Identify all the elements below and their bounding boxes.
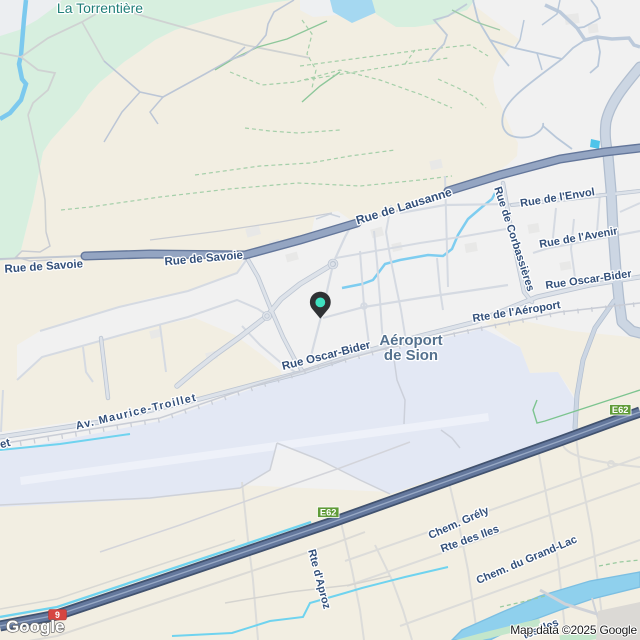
- svg-text:de Sion: de Sion: [384, 347, 438, 364]
- svg-text:Map data ©2025 Google: Map data ©2025 Google: [510, 623, 637, 637]
- svg-text:La Torrentière: La Torrentière: [57, 0, 143, 16]
- svg-text:E62: E62: [320, 508, 337, 518]
- svg-text:Google: Google: [6, 617, 65, 636]
- svg-text:E62: E62: [612, 405, 629, 415]
